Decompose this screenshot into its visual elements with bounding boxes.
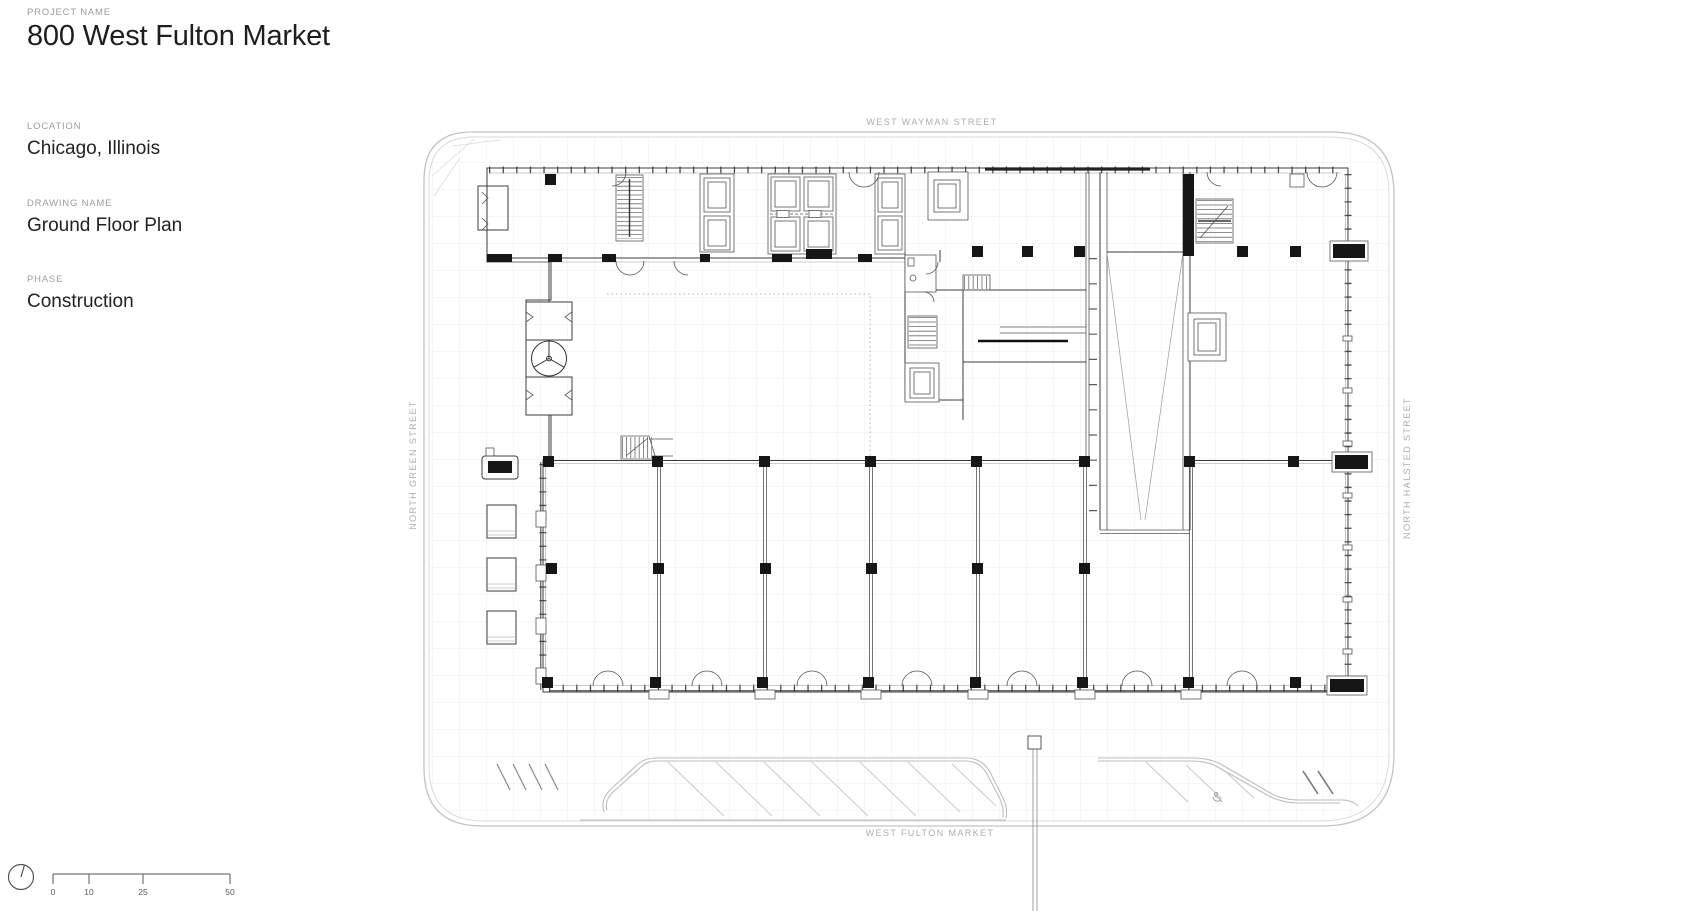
scale-tick-10: 10 [84,887,94,897]
elevator-bank-1 [700,174,734,252]
elevator-bank-2 [768,174,836,254]
elevator-bank-3 [875,174,905,254]
scale-tick-0: 0 [51,887,56,897]
street-label-north: WEST WAYMAN STREET [866,117,997,127]
elevator-service [928,172,968,220]
planter [487,611,516,644]
floor-plan-drawing: WEST WAYMAN STREET WEST FULTON MARKET NO… [0,0,1700,911]
street-label-south: WEST FULTON MARKET [866,828,995,838]
drawing-sheet: PROJECT NAME 800 West Fulton Market LOCA… [0,0,1700,911]
planter [487,558,516,591]
street-label-east: NORTH HALSTED STREET [1402,397,1412,539]
elevator-ramp-side [1188,313,1226,361]
shear-wall [1183,174,1194,256]
street-label-west: NORTH GREEN STREET [408,400,418,530]
elevator-core-south [905,363,939,402]
site-sidewalk [424,132,1394,826]
scale-bar: 0 10 25 50 [51,874,235,897]
north-arrow-icon [9,865,34,890]
revolving-door [532,341,567,376]
planter [487,505,516,538]
scale-tick-25: 25 [138,887,148,897]
scale-tick-50: 50 [225,887,235,897]
